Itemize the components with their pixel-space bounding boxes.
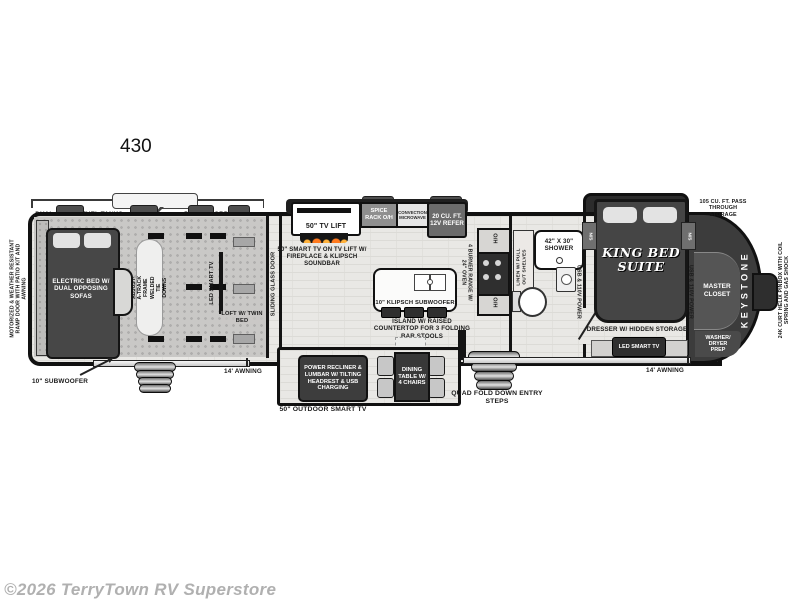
bedroom-tv: LED SMART TV [612,337,666,357]
power-recliner: POWER RECLINER & LUMBAR W/ TILTING HEADR… [298,355,368,402]
range [477,252,510,296]
tie-down [148,336,164,342]
bath-wall-right-stub [583,344,586,358]
pinbox-label: 24K CURT HELIX PINBOX WITH COIL SPRING A… [778,234,794,346]
tv-lift-note: 50" SMART TV ON TV LIFT W/ FIREPLACE & K… [277,247,367,268]
subwoofer-label: 10" SUBWOOFER [28,378,92,386]
tie-down [210,336,226,342]
bracket-tick-left [31,199,33,208]
bracket-tick-right [263,199,265,208]
burner [495,274,501,280]
pass-through-label: 105 CU. FT. PASS THROUGH STORAGE [696,199,750,218]
microwave-label: CONVECTION MICROWAVE [398,210,427,221]
master-closet: MASTER CLOSET [694,252,740,330]
entry-wall-stub [458,330,466,360]
bed-pillow [84,233,111,248]
tie-down-pill: ADJUST-A-TRACK FRAME WELDED TIE DOWNS [136,239,163,336]
entry-steps-label: QUAD FOLD DOWN ENTRY STEPS [451,390,543,406]
keystone-logo: KEYSTONE [740,247,753,333]
range-label: 4 BURNER RANGE W/ 24" OVEN [460,242,473,304]
nightstand-label: N/S [587,232,592,240]
island-subwoofer-label: 10" KLIPSCH SUBWOOFER [375,300,455,307]
burner [495,260,501,266]
dining-chair [428,356,445,376]
spice-rack-label: SPICE RACK O/H [362,208,396,221]
dining-chair [377,356,394,376]
washer-dryer: WASHER/ DRYER PREP [695,331,741,357]
nightstand-left: N/S [582,222,597,250]
bar-stool [404,307,424,318]
awning-left-tick [246,358,248,367]
page-title: 430 [120,136,152,158]
dresser-label: DRESSER W/ HIDDEN STORAGE [585,326,689,333]
refer-label: 20 CU. FT. 12V REFER [429,213,465,228]
usb-power-right: USB & 110V POWER [684,250,694,335]
loft-step [233,334,255,344]
tie-down [186,336,202,342]
awning-left-label: 14' AWNING [210,368,276,376]
bar-stool [381,307,401,318]
tie-down [186,284,202,290]
spice-rack: SPICE RACK O/H [360,202,398,228]
nightstand-label: N/S [686,232,691,240]
kitchen-island: 10" KLIPSCH SUBWOOFER [373,268,457,312]
garage-wall [266,216,269,358]
bed-pillow [53,233,80,248]
toilet [518,287,547,317]
linen-label: LINEN W/ PULL OUT SHELVES [517,245,529,290]
bar-stool [427,307,447,318]
dining-chair [428,378,445,398]
king-bed: KING BED SUITE [594,199,688,323]
microwave: CONVECTION MICROWAVE [396,202,429,228]
faucet [427,279,433,285]
loft-step [233,237,255,247]
bath-wall-left [509,216,512,358]
overhead-cabinet-top: O/H [489,229,498,249]
nightstand-right: N/S [681,222,696,250]
pinbox [752,273,778,311]
dining-table: DINING TABLE W/ 4 CHAIRS [394,352,430,402]
awning-right-tick [687,355,689,364]
dining-table-label: DINING TABLE W/ 4 CHAIRS [398,367,426,388]
loft-label: LOFT W/ TWIN BED [221,311,263,324]
recliner-label: POWER RECLINER & LUMBAR W/ TILTING HEADR… [302,365,364,392]
master-closet-label: MASTER CLOSET [694,283,740,299]
bed-pillow [603,207,637,223]
entry-step [476,380,512,390]
burner [483,260,489,266]
burner [483,274,489,280]
sink-basin [561,274,572,285]
bedroom-tv-label: LED SMART TV [619,344,660,350]
fireplace [300,233,348,243]
ramp-door-label: MOTORIZED & WEATHER RESISTANT RAMP DOOR … [10,234,27,344]
tie-downs-label: ADJUST-A-TRACK FRAME WELDED TIE DOWNS [131,275,168,300]
dining-chair [377,378,394,398]
shower-drain [556,257,563,264]
awning-right-label: 14' AWNING [630,367,700,375]
garage-tv [219,252,223,314]
floorplan-page: 430 DUAL 30 GAL. FUEL TANKS 50 AMP CORD … [0,0,800,600]
tv-lift: 50" TV LIFT [291,202,361,236]
bed-pillow [643,207,677,223]
garage-step [139,384,171,393]
usb-power-left: USB & 110V POWER [572,250,582,335]
tie-down [186,233,202,239]
king-bed-label: KING BED SUITE [601,246,681,275]
refrigerator: 20 CU. FT. 12V REFER [427,202,467,238]
watermark: ©2026 TerryTown RV Superstore [4,580,276,600]
tv-lift-label: 50" TV LIFT [293,223,359,231]
loft-step [233,284,255,294]
electric-bed-label: ELECTRIC BED W/ DUAL OPPOSING SOFAS [50,278,112,300]
garage-tv-label: LED SMART TV [209,253,219,313]
awning-right-bar [463,357,691,364]
tv-lift-screen [297,208,351,213]
washer-dryer-label: WASHER/ DRYER PREP [701,335,735,354]
tie-down [210,233,226,239]
outdoor-tv-label: 50" OUTDOOR SMART TV [277,406,369,414]
